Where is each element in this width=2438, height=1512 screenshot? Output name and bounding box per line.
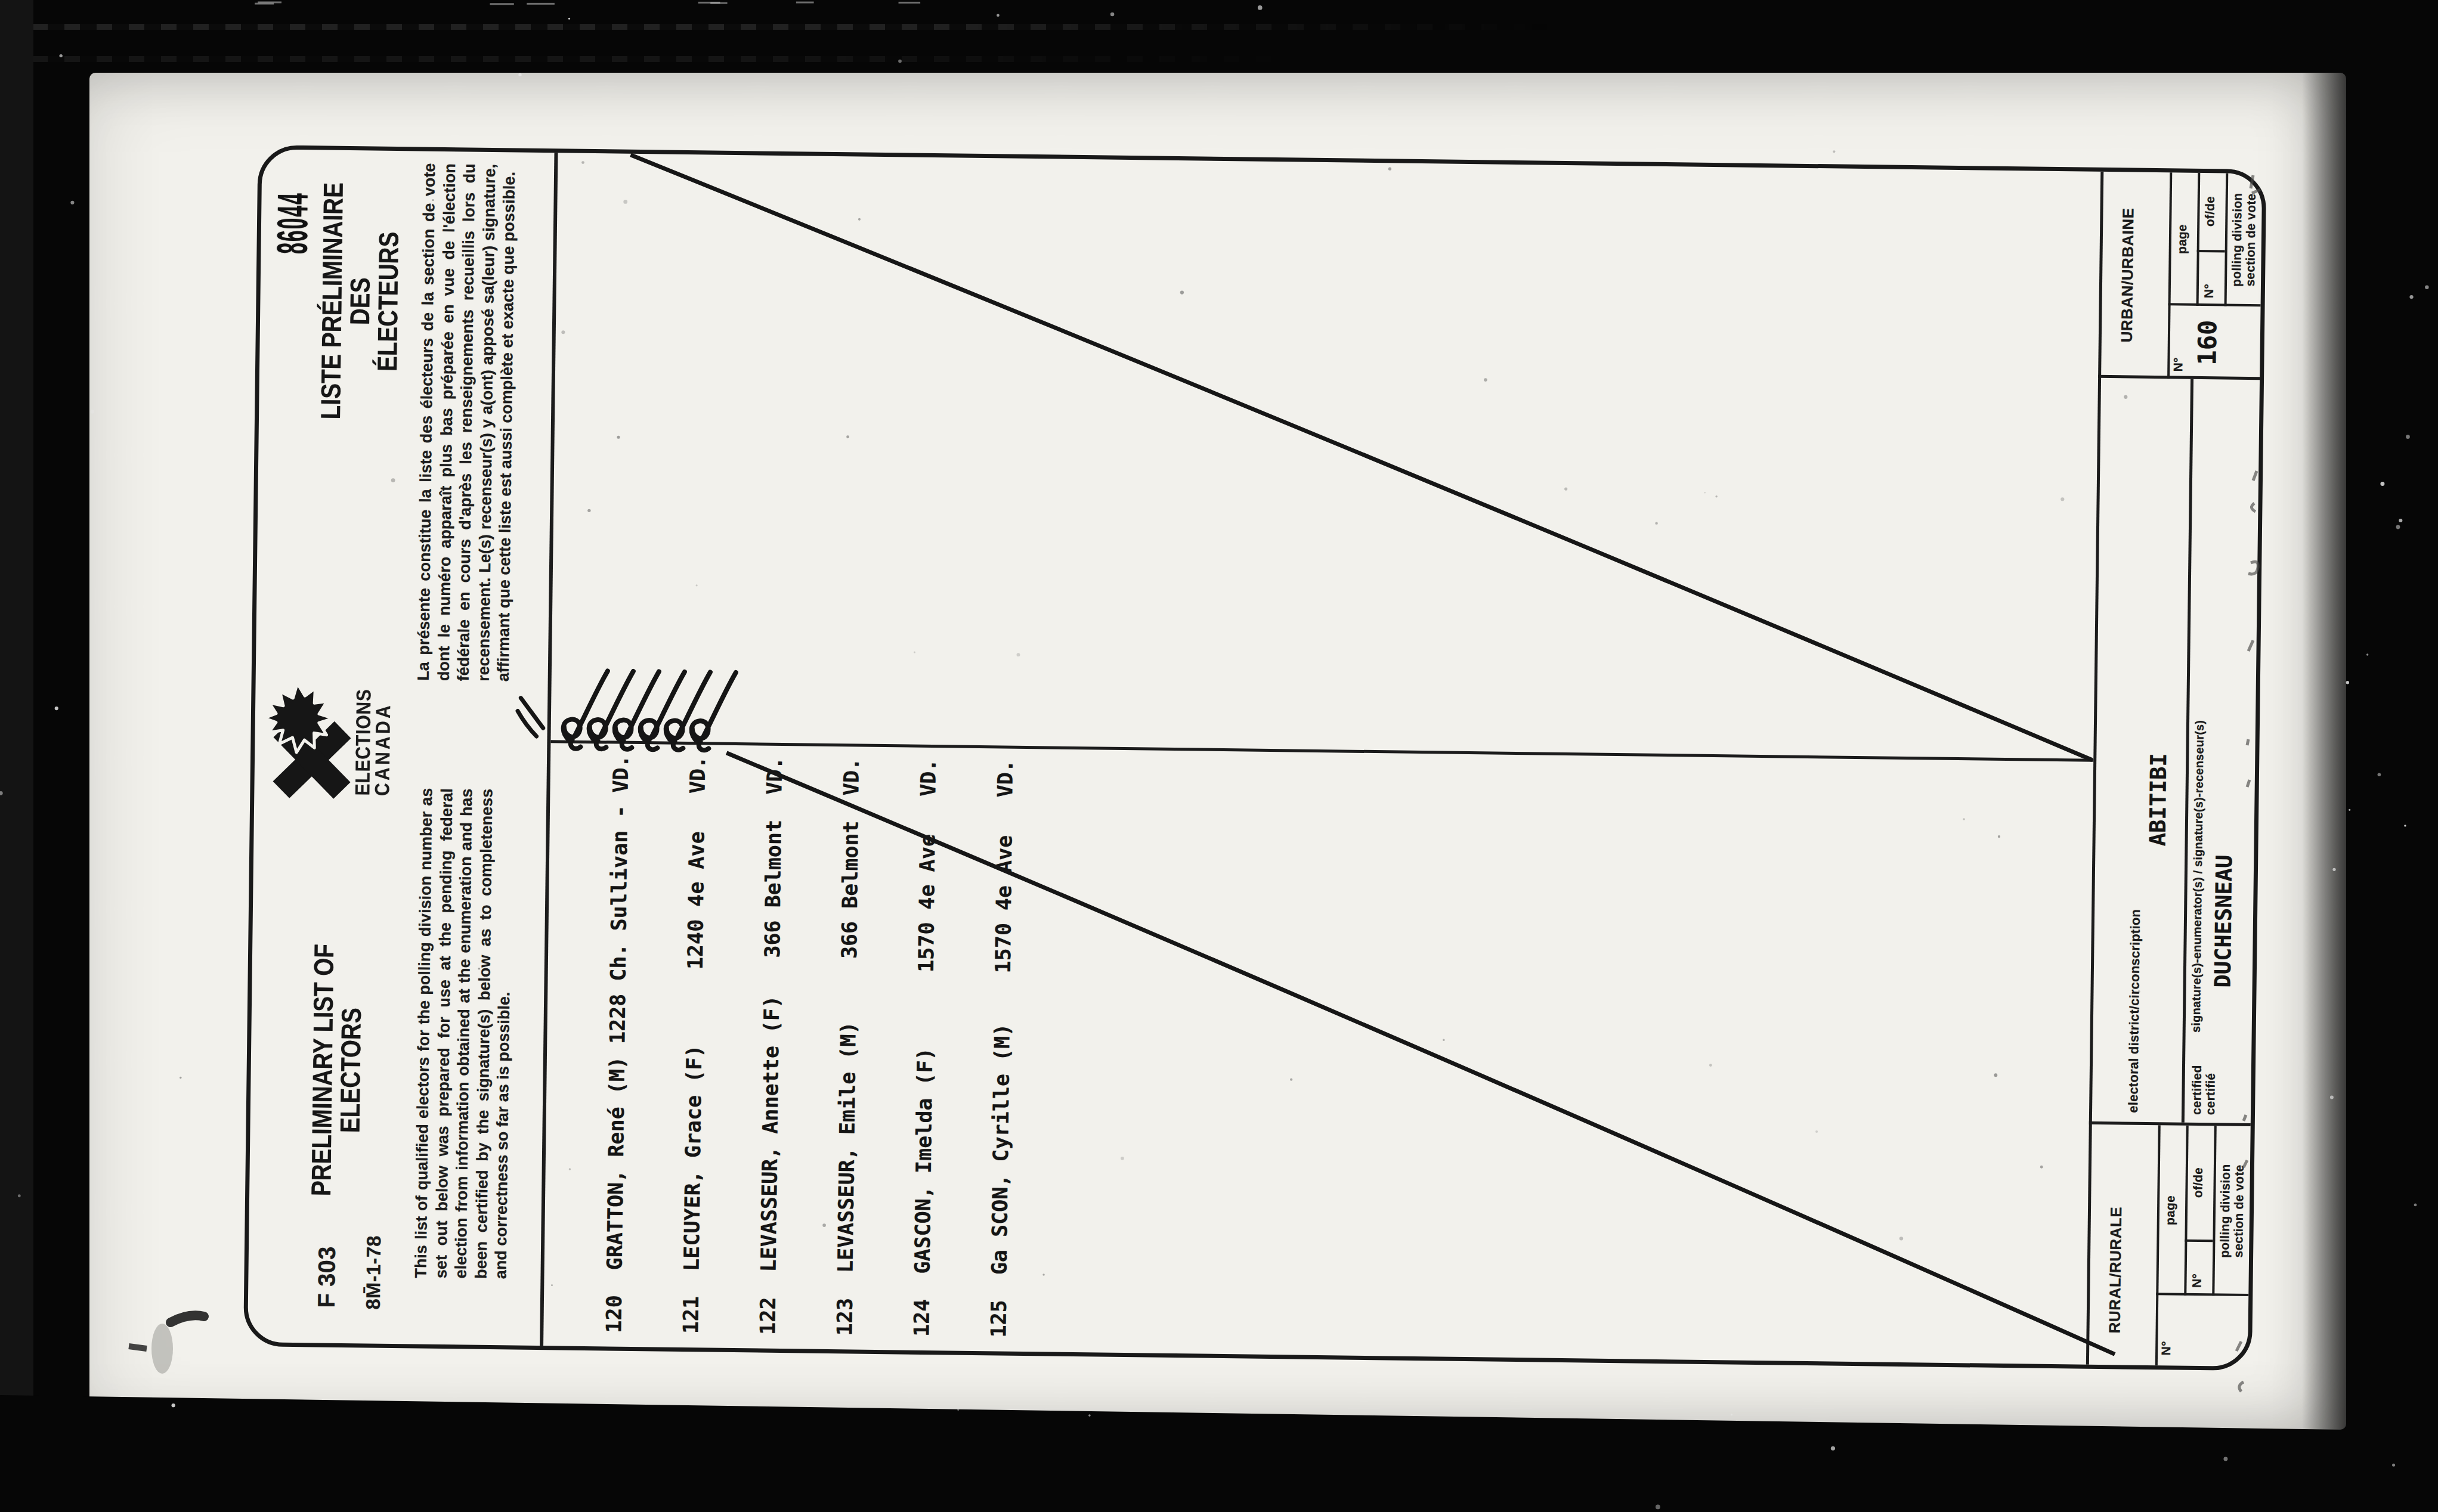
dust-speck bbox=[432, 199, 434, 201]
dust-speck bbox=[172, 1403, 175, 1407]
dust-speck bbox=[617, 436, 620, 439]
dust-speck bbox=[1656, 1504, 1660, 1509]
dust-speck bbox=[846, 435, 849, 438]
dust-speck bbox=[1017, 653, 1020, 656]
dust-speck bbox=[518, 73, 521, 76]
dust-speck bbox=[2404, 825, 2406, 826]
dust-speck bbox=[55, 707, 58, 710]
dust-speck bbox=[1715, 495, 1717, 497]
dust-speck bbox=[2366, 653, 2368, 655]
dust-speck bbox=[1180, 290, 1184, 294]
dust-speck bbox=[1088, 1414, 1091, 1417]
dust-speck bbox=[1258, 5, 1263, 10]
dust-speck bbox=[91, 410, 94, 413]
dust-speck bbox=[587, 509, 590, 512]
film-sprocket-dash bbox=[527, 3, 555, 5]
dust-speck bbox=[1998, 835, 2000, 838]
dust-speck bbox=[2332, 868, 2335, 871]
dust-speck bbox=[478, 968, 480, 970]
dust-speck bbox=[1121, 1157, 1124, 1160]
dust-speck bbox=[1963, 818, 1965, 820]
dust-speck bbox=[581, 161, 584, 164]
dust-speck bbox=[1564, 487, 1567, 490]
film-sprocket-dash bbox=[258, 1, 281, 3]
dust-speck bbox=[2392, 1464, 2395, 1467]
dust-speck bbox=[696, 584, 698, 586]
dust-speck bbox=[1833, 150, 1835, 153]
microfilm-scan: F 303 PRELIMINARY LIST OF ELECTORS 8M̄-1… bbox=[0, 0, 2438, 1512]
dust-speck bbox=[1831, 1446, 1835, 1451]
dust-speck bbox=[1290, 1079, 1292, 1081]
dust-speck bbox=[858, 218, 861, 221]
dust-speck bbox=[2396, 525, 2400, 529]
dust-speck bbox=[391, 478, 395, 482]
film-sprocket-dash bbox=[899, 2, 921, 4]
dust-speck bbox=[2060, 497, 2064, 501]
dust-speck bbox=[1443, 1039, 1445, 1041]
dust-speck bbox=[2330, 1096, 2334, 1099]
dust-speck bbox=[2138, 990, 2140, 993]
dust-speck bbox=[2414, 1203, 2417, 1206]
dust-speck bbox=[2124, 395, 2127, 399]
dust-speck bbox=[1655, 522, 1657, 524]
dust-speck bbox=[1388, 168, 1391, 171]
dust-speck bbox=[70, 201, 74, 205]
dust-speck bbox=[2223, 1457, 2227, 1461]
dust-speck bbox=[568, 18, 570, 20]
dust-speck bbox=[1704, 492, 1705, 493]
dust-speck bbox=[914, 651, 915, 653]
dust-speck bbox=[1994, 1073, 1997, 1077]
dust-speck bbox=[623, 200, 627, 204]
film-sprocket-dash bbox=[490, 3, 513, 5]
dust-speck bbox=[623, 869, 627, 872]
dust-speck bbox=[2346, 681, 2349, 684]
film-sprocket-dash bbox=[710, 2, 727, 4]
dust-specks-layer bbox=[0, 0, 2438, 1512]
dust-speck bbox=[2380, 482, 2384, 486]
dust-speck bbox=[1110, 13, 1115, 17]
dust-speck bbox=[551, 1284, 553, 1286]
dust-speck bbox=[2378, 773, 2381, 776]
dust-speck bbox=[1484, 378, 1487, 382]
dust-speck bbox=[0, 791, 3, 795]
dust-speck bbox=[18, 1194, 21, 1197]
dust-speck bbox=[957, 1409, 959, 1411]
dust-speck bbox=[1709, 1064, 1712, 1067]
dust-speck bbox=[59, 54, 62, 57]
dust-speck bbox=[997, 14, 1000, 17]
dust-speck bbox=[2425, 286, 2428, 289]
dust-speck bbox=[561, 330, 565, 334]
film-sprocket-dash bbox=[796, 2, 814, 4]
dust-speck bbox=[2406, 435, 2410, 439]
dust-speck bbox=[1899, 1237, 1903, 1240]
dust-speck bbox=[1815, 1130, 1818, 1133]
dust-speck bbox=[180, 1077, 181, 1079]
dust-speck bbox=[2040, 1166, 2043, 1169]
dust-speck bbox=[2399, 519, 2402, 522]
dust-speck bbox=[1731, 1414, 1732, 1415]
dust-speck bbox=[569, 1168, 571, 1170]
dust-speck bbox=[2349, 809, 2350, 811]
dust-speck bbox=[1042, 1274, 1045, 1276]
dust-speck bbox=[898, 60, 902, 63]
dust-speck bbox=[2409, 295, 2413, 299]
dust-speck bbox=[822, 1223, 826, 1227]
